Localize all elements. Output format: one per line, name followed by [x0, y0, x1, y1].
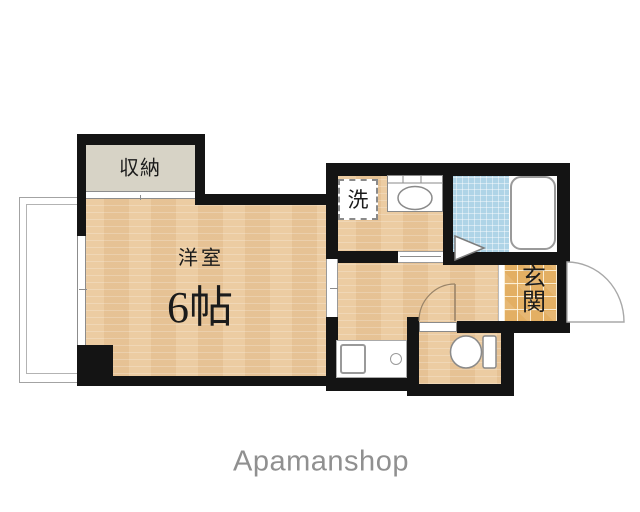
- folding-bath-door-icon: [455, 236, 484, 260]
- fixture-overlay: [0, 0, 640, 512]
- toilet-door-arc: [419, 284, 455, 321]
- entrance-door-arc: [567, 262, 624, 322]
- entrance-label: 玄関: [514, 264, 549, 314]
- toilet-tank: [483, 336, 496, 368]
- main-room-size-label: 6帖: [167, 271, 233, 335]
- washbasin-bowl: [398, 187, 432, 210]
- closet-label: 収納: [119, 152, 161, 181]
- watermark: Apamanshop: [233, 446, 409, 479]
- floorplan-canvas: 収納 洋室 6帖 洗 玄関 Apamanshop: [0, 0, 640, 512]
- laundry-label: 洗: [348, 184, 369, 214]
- main-room-label: 洋室: [178, 242, 224, 271]
- toilet-bowl: [451, 336, 482, 368]
